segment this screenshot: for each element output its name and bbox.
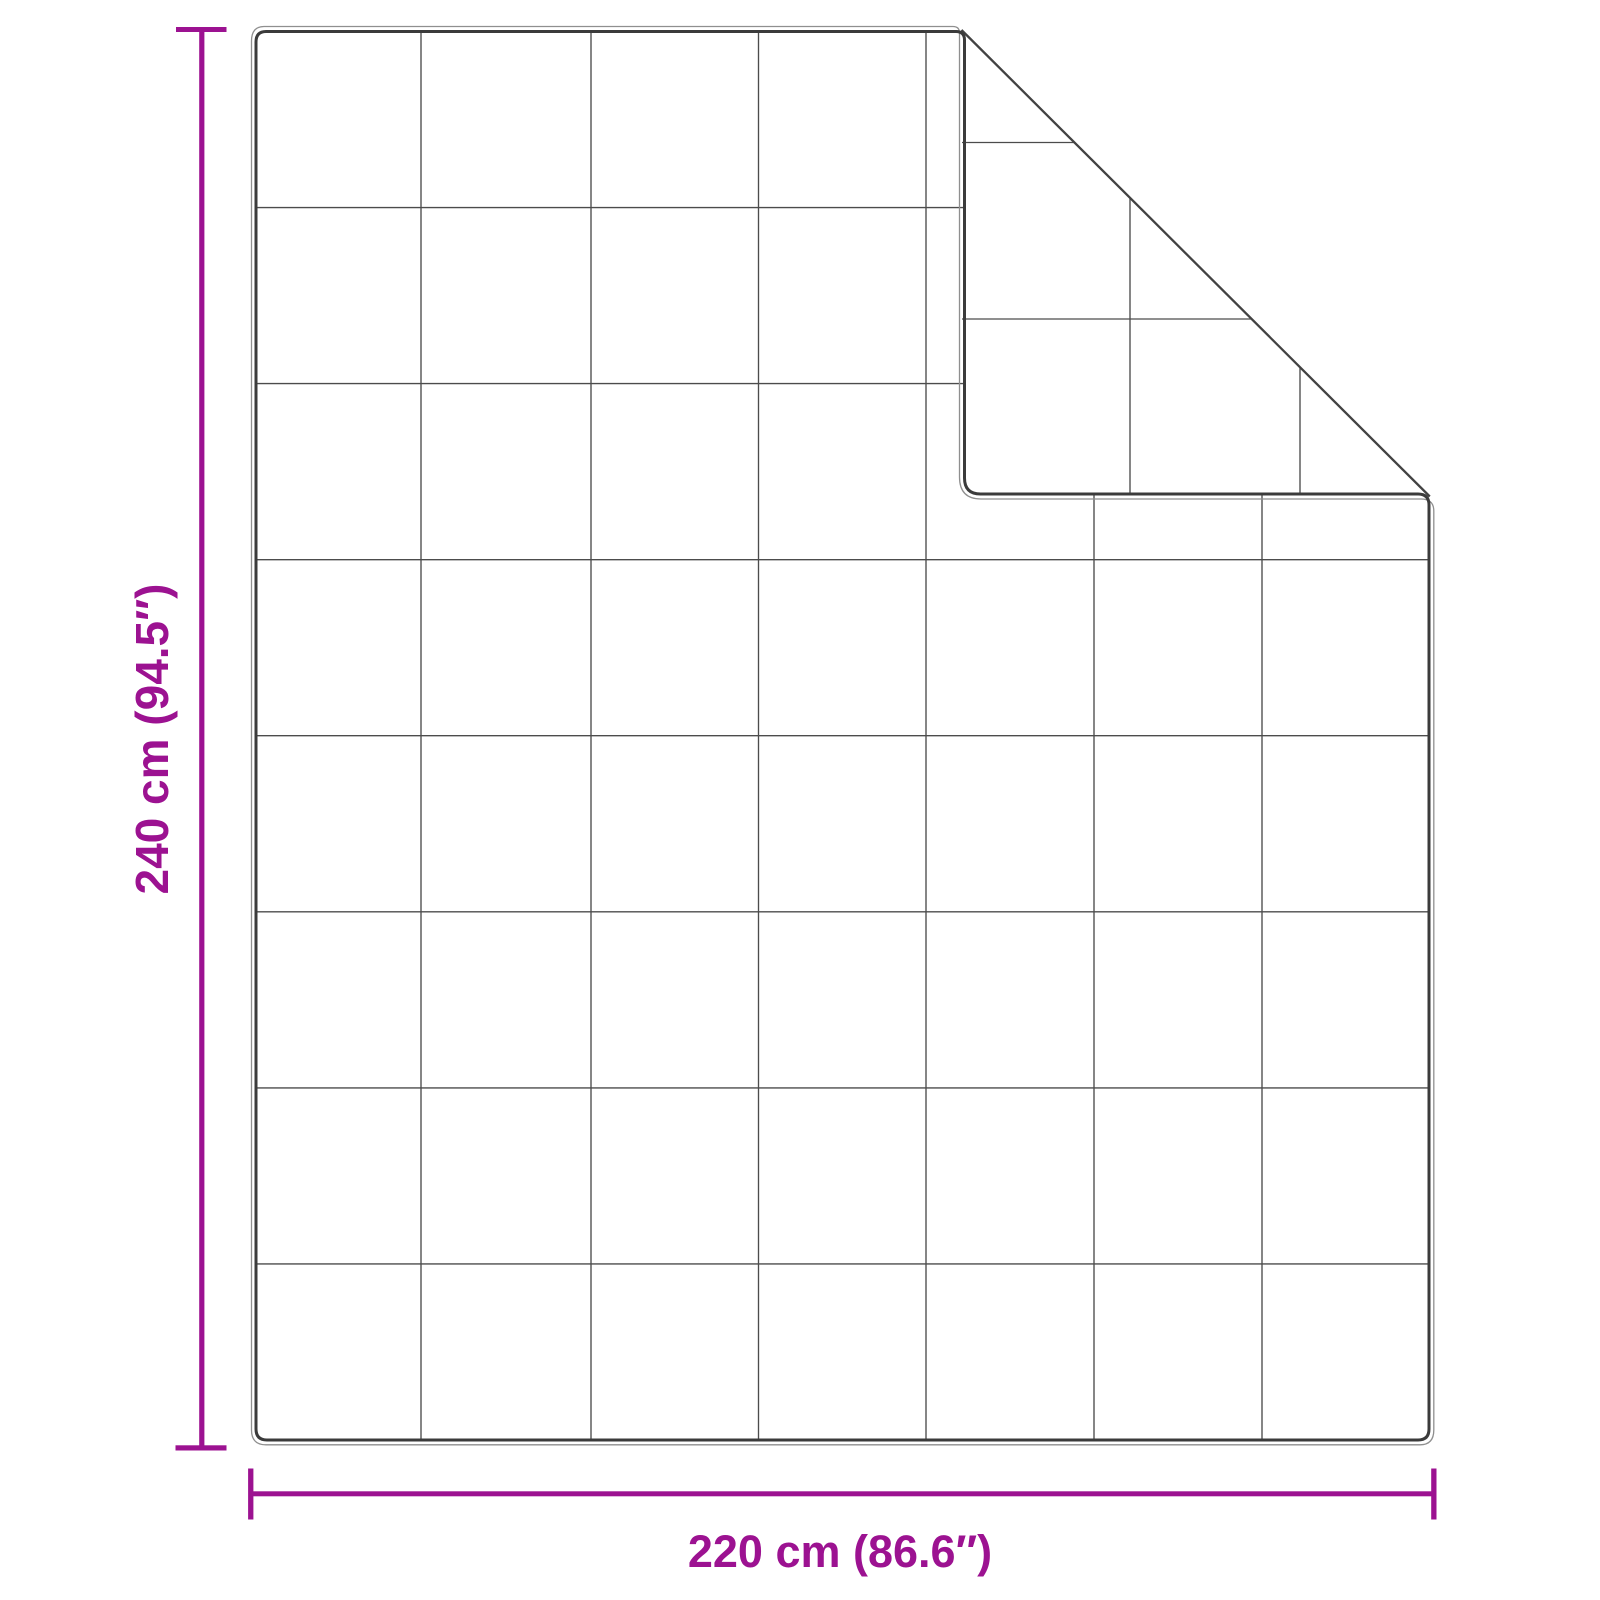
svg-text:240 cm (94.5″): 240 cm (94.5″) (126, 584, 178, 895)
svg-text:220 cm (86.6″): 220 cm (86.6″) (688, 1526, 992, 1577)
